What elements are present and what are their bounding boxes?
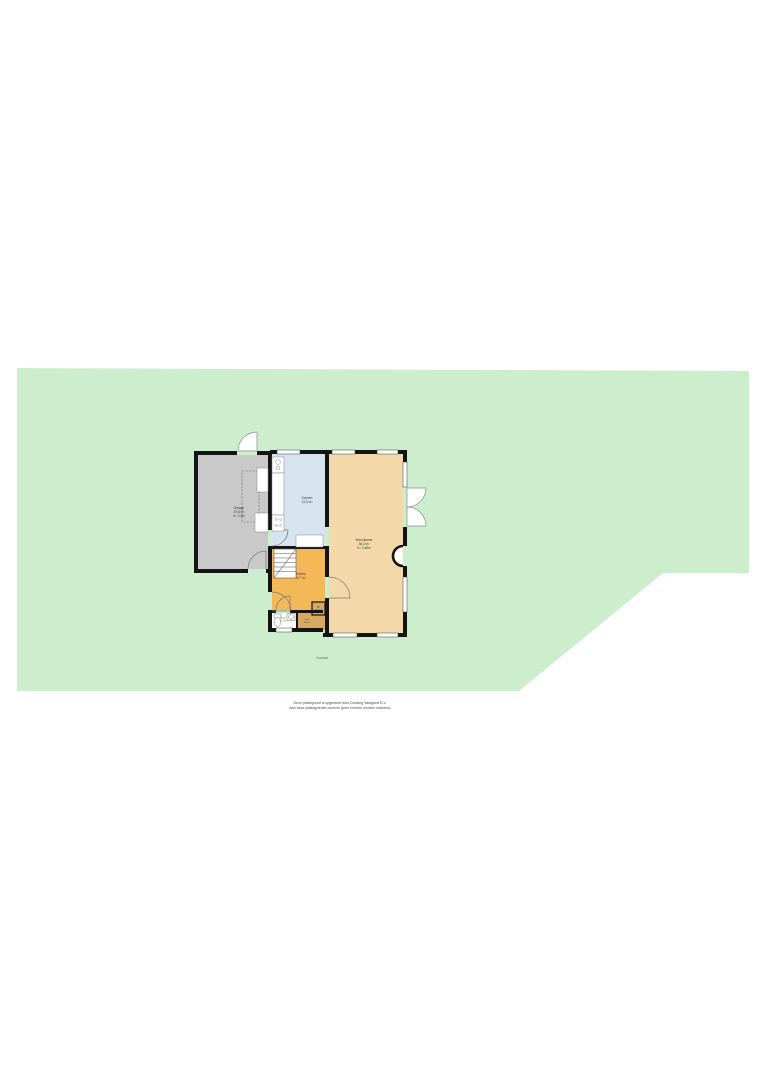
mk-room [312,602,325,615]
mk-area: 0,4 m² [315,609,321,612]
woonkamer-height: h= 2,48m [357,546,371,550]
toilet-label: Toilet [280,617,285,620]
window-woonkamer-right-1 [403,462,407,487]
window-keuken-top [277,450,300,454]
disclaimer: Deze plattegrond is opgesteld door Docki… [289,701,391,710]
kast-label: Kast [305,618,310,621]
floorplan-page: Garage 19,8 m² h= 2,4m Keuken 12,6 m² Wo… [0,0,764,1080]
toilet-area: 1,1 m² [280,620,286,623]
kitchen-stove [272,515,284,531]
garage-cabinet-2 [255,513,268,532]
window-woonkamer-bottom-2 [377,633,398,637]
window-toilet-bottom [276,628,292,632]
kast-area: 0,8 m² [304,621,310,624]
garage-height: h= 2,4m [233,514,245,518]
entree-area: 5,7 m² [296,576,305,580]
staircase [274,549,296,578]
garage-cabinet-1 [257,468,268,492]
kitchen-counter [272,473,284,515]
window-woonkamer-right-2 [403,577,407,612]
disclaimer-line-2: Aan deze plattegronden kunnen geen recht… [289,706,391,710]
window-woonkamer-bottom-1 [333,633,357,637]
window-woonkamer-top-2 [377,450,398,454]
disclaimer-line-1: Deze plattegrond is opgesteld door Docki… [293,701,386,705]
fireplace-niche [393,546,403,566]
garden-label: Voortuin [316,656,329,660]
window-woonkamer-top-1 [332,450,355,454]
keuken-area: 12,6 m² [302,500,313,504]
kitchen-peninsula [296,535,323,547]
site-plan-canvas: Garage 19,8 m² h= 2,4m Keuken 12,6 m² Wo… [0,0,764,1080]
mk-label: MK [317,607,321,609]
